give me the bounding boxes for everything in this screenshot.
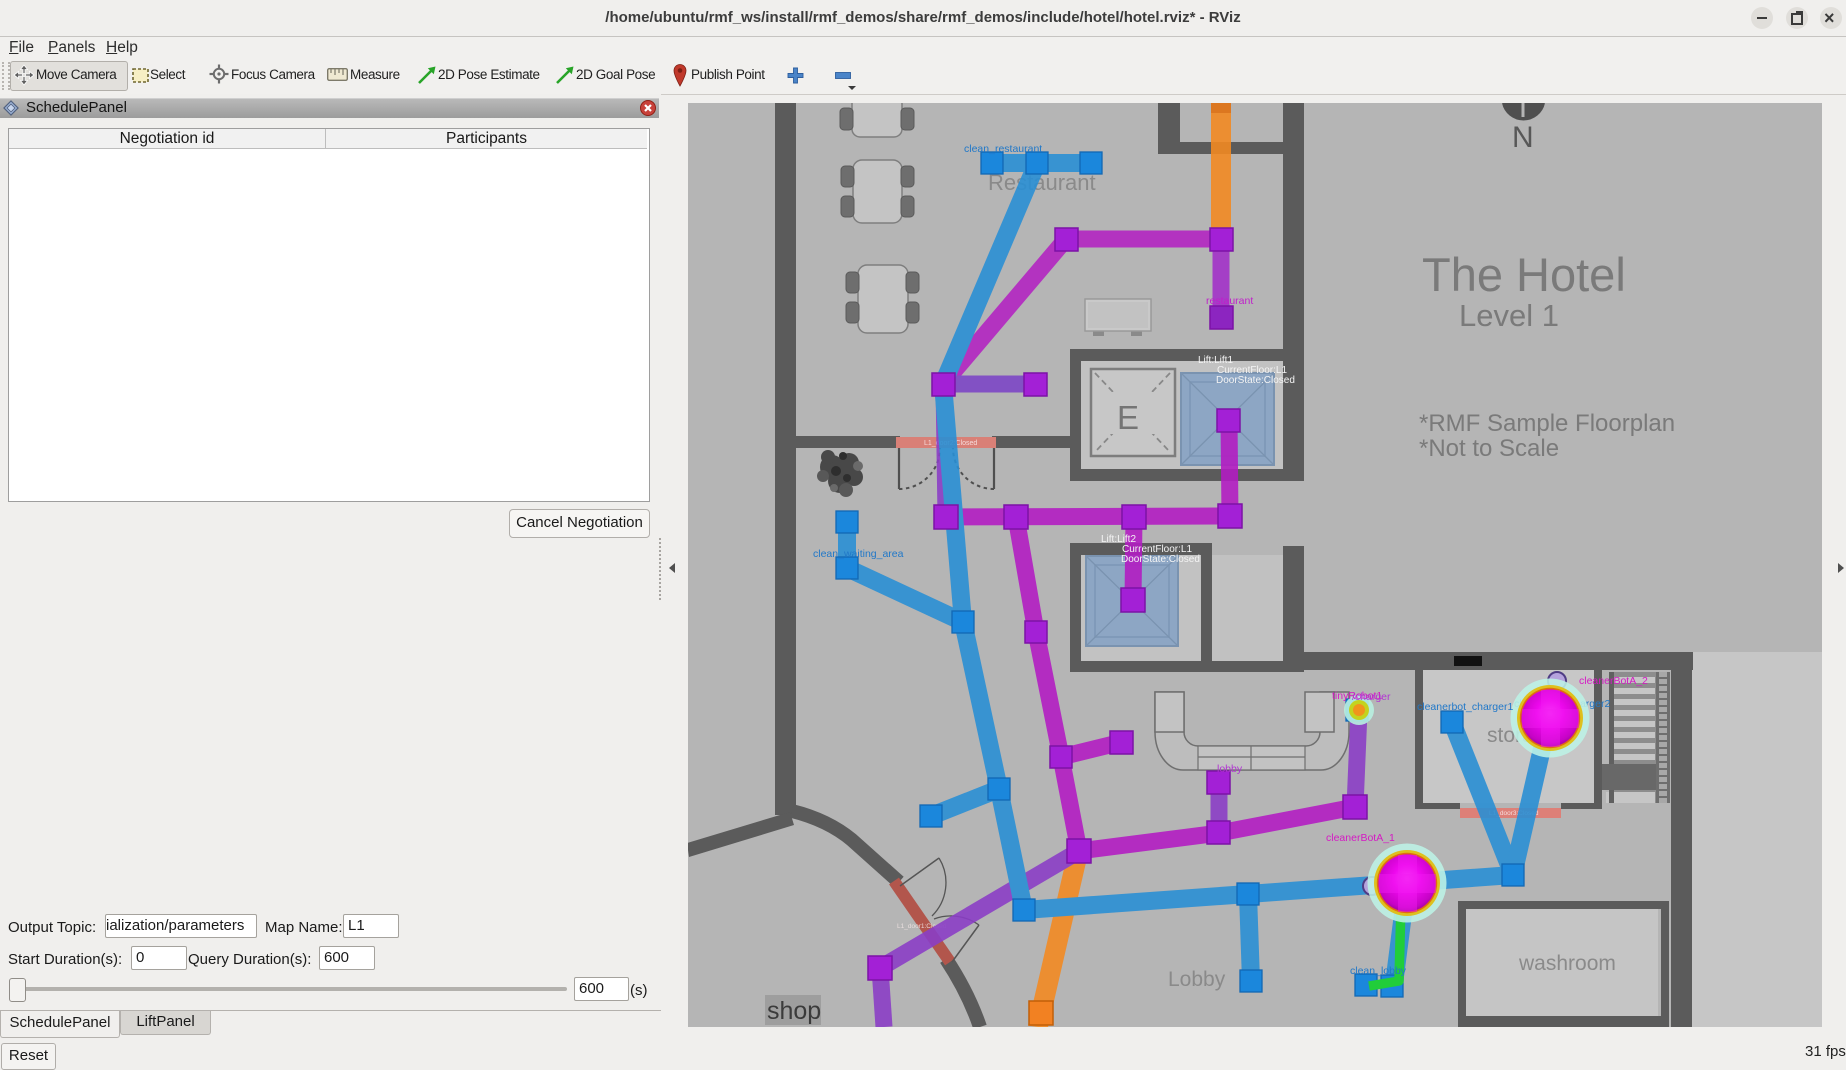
svg-text:/charger: /charger <box>1352 691 1391 703</box>
svg-text:N: N <box>1512 121 1534 154</box>
svg-text:shop: shop <box>767 997 821 1025</box>
svg-text:clean_restaurant: clean_restaurant <box>964 143 1042 155</box>
svg-text:*RMF Sample Floorplan: *RMF Sample Floorplan <box>1419 410 1675 437</box>
svg-text:DoorState:Closed: DoorState:Closed <box>1216 375 1295 386</box>
svg-text:clean_lobby: clean_lobby <box>1350 965 1407 977</box>
svg-text:DoorState:Closed: DoorState:Closed <box>1121 554 1200 565</box>
svg-text:Level 1: Level 1 <box>1459 298 1559 333</box>
svg-text:restaurant: restaurant <box>1206 295 1253 307</box>
svg-text:*Not to Scale: *Not to Scale <box>1419 435 1559 462</box>
svg-text:cleanerBotA_2: cleanerBotA_2 <box>1579 675 1648 687</box>
svg-text:lobby: lobby <box>1217 763 1243 775</box>
svg-text:washroom: washroom <box>1518 952 1616 975</box>
svg-text:cleanerbot_charger1: cleanerbot_charger1 <box>1417 701 1513 713</box>
svg-text:E: E <box>1117 399 1139 436</box>
svg-text:Lobby: Lobby <box>1168 968 1226 991</box>
svg-text:The Hotel: The Hotel <box>1422 248 1626 301</box>
svg-text:cleanerBotA_1: cleanerBotA_1 <box>1326 832 1395 844</box>
svg-text:clean_waiting_area: clean_waiting_area <box>813 548 904 560</box>
